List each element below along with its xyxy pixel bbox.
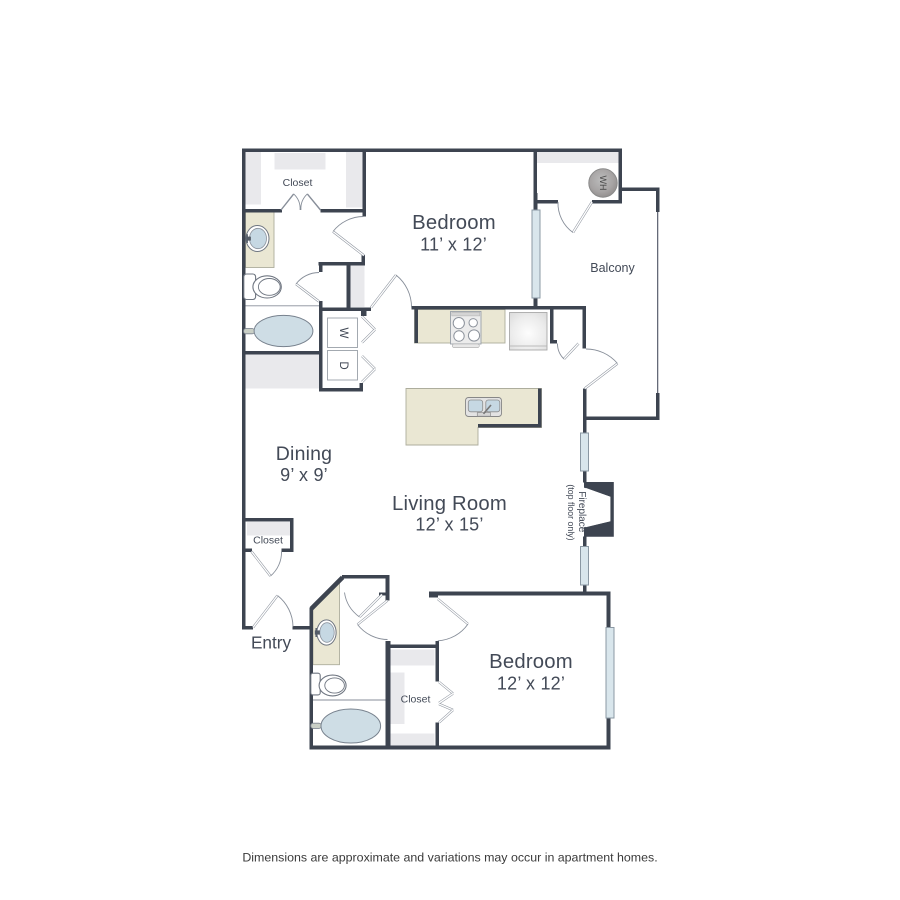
svg-text:W: W	[337, 328, 349, 339]
svg-text:Balcony: Balcony	[590, 261, 635, 275]
svg-text:Closet: Closet	[401, 694, 431, 706]
svg-text:WH: WH	[598, 176, 608, 191]
svg-text:12’ x 15’: 12’ x 15’	[415, 515, 483, 535]
svg-text:Dimensions are approximate and: Dimensions are approximate and variation…	[242, 851, 657, 865]
svg-text:Fireplace: Fireplace	[576, 491, 587, 533]
svg-text:Closet: Closet	[283, 177, 313, 189]
svg-text:D: D	[337, 361, 349, 369]
svg-text:Entry: Entry	[251, 633, 292, 653]
svg-text:Bedroom: Bedroom	[412, 212, 496, 234]
svg-text:Dining: Dining	[276, 443, 332, 465]
svg-text:Living Room: Living Room	[392, 493, 507, 515]
svg-text:Closet: Closet	[253, 535, 283, 547]
svg-text:11’ x 12’: 11’ x 12’	[420, 235, 487, 255]
svg-text:(top floor only): (top floor only)	[566, 484, 576, 540]
svg-text:9’ x 9’: 9’ x 9’	[280, 465, 328, 485]
svg-text:Bedroom: Bedroom	[489, 651, 573, 673]
svg-text:12’ x 12’: 12’ x 12’	[497, 674, 565, 694]
